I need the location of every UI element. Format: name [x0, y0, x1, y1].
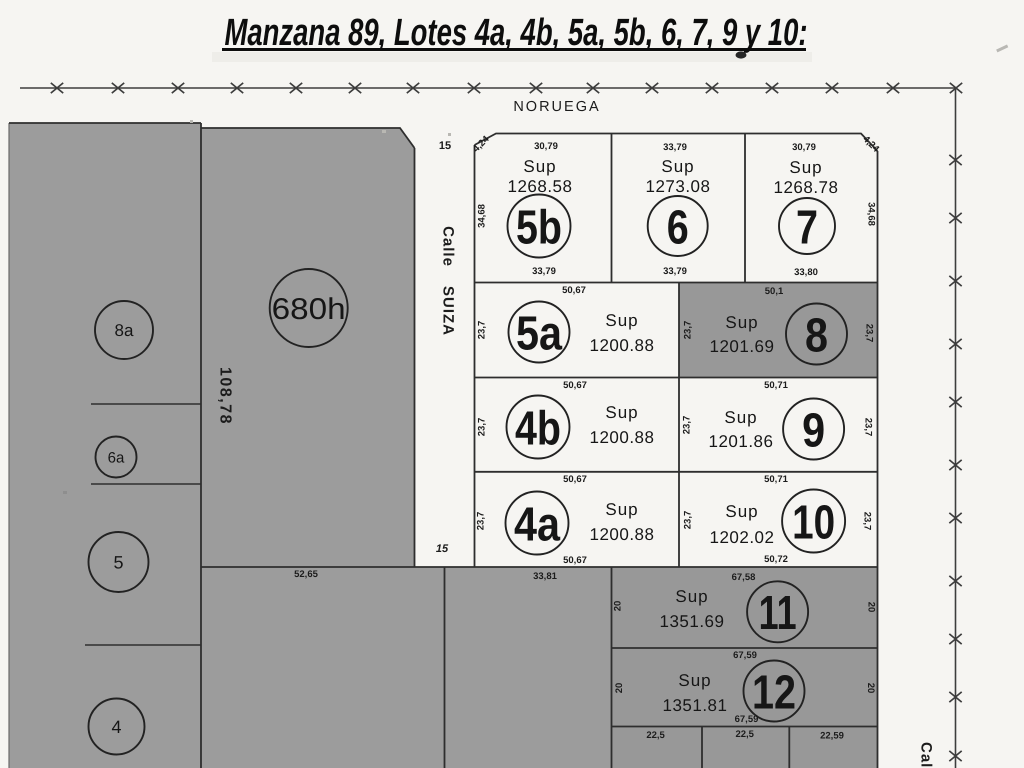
svg-text:1268.58: 1268.58 [508, 177, 573, 196]
svg-text:67,59: 67,59 [733, 650, 757, 661]
svg-text:11: 11 [759, 587, 797, 640]
svg-text:52,65: 52,65 [294, 569, 318, 580]
svg-text:50,72: 50,72 [764, 554, 788, 565]
svg-text:6: 6 [667, 201, 689, 254]
svg-text:22,59: 22,59 [820, 731, 844, 742]
svg-text:1273.08: 1273.08 [646, 177, 711, 196]
svg-text:34,68: 34,68 [866, 202, 877, 226]
svg-text:9: 9 [802, 404, 825, 457]
svg-text:1201.86: 1201.86 [709, 432, 774, 451]
svg-text:50,71: 50,71 [764, 474, 788, 485]
svg-text:Calle: Calle [918, 742, 935, 768]
svg-text:5a: 5a [516, 307, 562, 360]
svg-text:23,7: 23,7 [863, 418, 874, 437]
svg-text:67,58: 67,58 [732, 572, 756, 583]
svg-text:23,7: 23,7 [864, 324, 875, 343]
svg-text:20: 20 [614, 683, 625, 694]
svg-text:1351.69: 1351.69 [660, 612, 725, 631]
svg-text:50,1: 50,1 [765, 286, 784, 297]
svg-text:33,79: 33,79 [663, 266, 687, 277]
svg-text:30,79: 30,79 [792, 142, 816, 153]
svg-text:5b: 5b [516, 201, 562, 254]
svg-text:23,7: 23,7 [683, 511, 694, 530]
svg-text:1201.69: 1201.69 [710, 337, 775, 356]
svg-text:20: 20 [613, 601, 624, 612]
svg-text:20: 20 [866, 602, 877, 613]
svg-text:23,7: 23,7 [862, 512, 873, 531]
svg-text:10: 10 [792, 496, 835, 549]
svg-text:23,7: 23,7 [683, 321, 694, 340]
svg-text:20: 20 [865, 683, 876, 694]
svg-text:23,7: 23,7 [682, 416, 693, 435]
svg-text:50,67: 50,67 [563, 555, 587, 566]
svg-text:67,59: 67,59 [735, 714, 759, 725]
svg-text:1351.81: 1351.81 [663, 696, 728, 715]
svg-text:33,81: 33,81 [533, 571, 557, 582]
svg-text:1202.02: 1202.02 [710, 528, 775, 547]
svg-text:33,79: 33,79 [532, 266, 556, 277]
svg-text:50,67: 50,67 [563, 380, 587, 391]
svg-text:Calle: Calle [440, 226, 457, 267]
svg-text:4a: 4a [514, 498, 560, 551]
svg-text:34,68: 34,68 [477, 204, 488, 228]
svg-text:NORUEGA: NORUEGA [513, 99, 600, 115]
svg-text:1200.88: 1200.88 [590, 525, 655, 544]
svg-text:23,7: 23,7 [477, 321, 488, 340]
svg-text:50,67: 50,67 [562, 285, 586, 296]
svg-text:Sup: Sup [789, 158, 822, 177]
svg-text:30,79: 30,79 [534, 141, 558, 152]
svg-text:6a: 6a [108, 449, 125, 466]
svg-text:Sup: Sup [523, 157, 556, 176]
svg-text:22,5: 22,5 [735, 729, 754, 740]
svg-text:Sup: Sup [725, 502, 758, 521]
svg-text:Sup: Sup [605, 311, 638, 330]
svg-text:7: 7 [796, 201, 818, 254]
svg-text:1200.88: 1200.88 [590, 428, 655, 447]
svg-text:Sup: Sup [661, 157, 694, 176]
svg-text:SUIZA: SUIZA [440, 286, 457, 336]
svg-text:23,7: 23,7 [477, 418, 488, 437]
svg-text:1200.88: 1200.88 [590, 336, 655, 355]
svg-text:Sup: Sup [725, 313, 758, 332]
svg-text:50,67: 50,67 [563, 474, 587, 485]
svg-text:4: 4 [111, 717, 121, 737]
svg-text:12: 12 [752, 666, 796, 719]
svg-text:8: 8 [805, 309, 828, 362]
svg-text:8a: 8a [115, 321, 134, 340]
svg-text:680h: 680h [272, 293, 346, 326]
svg-text:Sup: Sup [605, 500, 638, 519]
svg-text:108,78: 108,78 [217, 367, 234, 425]
svg-text:33,79: 33,79 [663, 142, 687, 153]
svg-text:Sup: Sup [675, 587, 708, 606]
svg-text:33,80: 33,80 [794, 267, 818, 278]
svg-text:Sup: Sup [605, 403, 638, 422]
svg-text:Sup: Sup [678, 671, 711, 690]
svg-text:Manzana 89, Lotes 4a, 4b, 5a,: Manzana 89, Lotes 4a, 4b, 5a, 5b, 6, 7, … [225, 12, 808, 54]
svg-text:23,7: 23,7 [476, 512, 487, 531]
svg-text:1268.78: 1268.78 [774, 178, 839, 197]
svg-text:Sup: Sup [724, 408, 757, 427]
svg-text:15: 15 [439, 140, 451, 152]
svg-text:50,71: 50,71 [764, 380, 788, 391]
svg-text:5: 5 [113, 553, 123, 573]
svg-text:15: 15 [436, 543, 449, 555]
svg-text:4b: 4b [515, 402, 561, 455]
svg-text:22,5: 22,5 [646, 730, 665, 741]
